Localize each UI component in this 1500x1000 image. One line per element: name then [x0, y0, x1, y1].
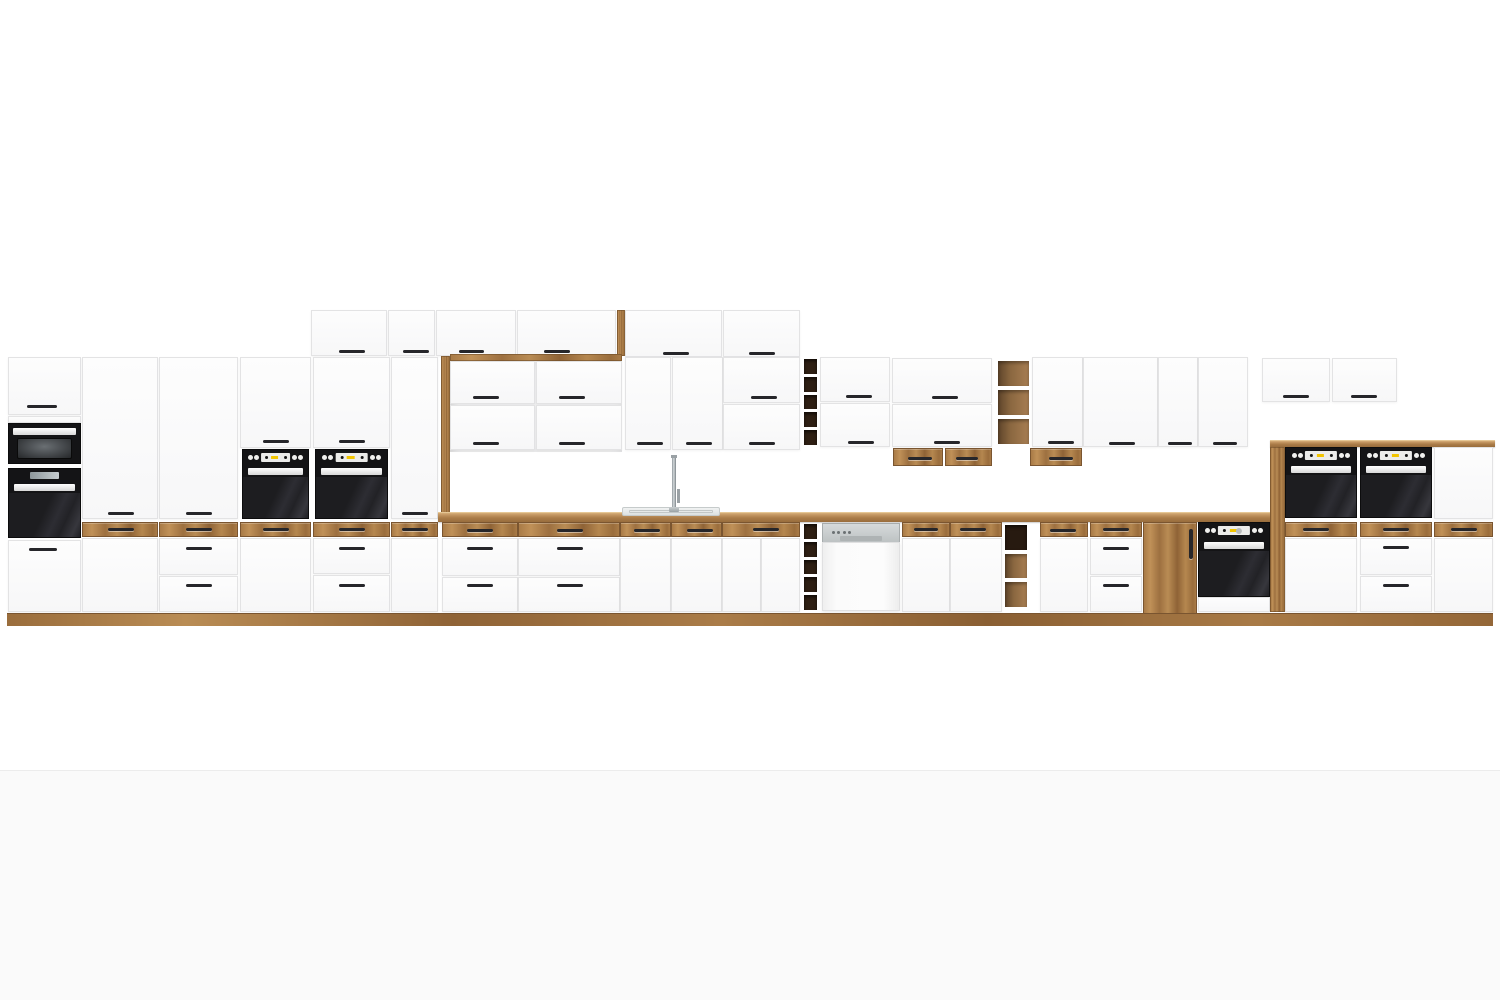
tall3-drawer-1: [159, 538, 238, 575]
oven-door-handle-bar: [1291, 466, 1351, 473]
cabinet-handle: [960, 528, 986, 531]
open-shelf-cell: [998, 390, 1029, 415]
wall-flap-2: [723, 404, 800, 450]
wall-door-4: [1083, 357, 1158, 447]
cabinet-handle: [749, 442, 775, 445]
cabinet-handle: [1283, 395, 1309, 398]
sinkbase-door-1: [620, 538, 671, 612]
wine-rack-cell: [804, 577, 817, 592]
wall-wood-drawer-2: [945, 448, 992, 466]
wall-top-door-1: [311, 310, 387, 356]
kitchen-product-render: [0, 0, 1500, 1000]
wine-rack-cell: [804, 395, 817, 410]
base2-wood-drawer: [518, 522, 620, 537]
oven-door-handle-bar: [1366, 466, 1426, 473]
recess-frame-top: [450, 354, 622, 361]
wall-flap-6: [892, 404, 992, 447]
housing-wood-drawer-2: [1360, 522, 1432, 537]
open-shelf-cell: [1005, 582, 1027, 607]
oven-door: [1361, 475, 1431, 517]
wall-top-door-4: [517, 310, 616, 356]
faucet-top: [671, 455, 677, 458]
cabinet-handle: [403, 350, 429, 353]
wine-rack-cell: [804, 412, 817, 427]
cabinet-handle: [263, 440, 289, 443]
dishwasher: [822, 523, 900, 611]
sinkbase-wood-drawer-1: [620, 522, 671, 537]
cabinet-handle: [846, 395, 872, 398]
tall4-door-lower: [391, 538, 438, 612]
open-shelf-cell: [998, 361, 1029, 386]
compact-oven-panel: [9, 469, 80, 482]
base2-drawer-1: [518, 538, 620, 576]
housing-drawer-2: [1360, 576, 1432, 612]
cabinet-handle: [1213, 442, 1237, 445]
cabinet-handle: [956, 457, 978, 460]
base6-wood-drawer: [1040, 522, 1088, 537]
cabinet-handle: [934, 441, 960, 444]
cabinet-handle: [932, 396, 958, 399]
base2-drawer-2: [518, 577, 620, 612]
cabinet-handle: [751, 396, 777, 399]
wall-top-door-2: [388, 310, 435, 356]
recess-flap-4: [536, 405, 622, 450]
recess-flap-1: [450, 361, 535, 404]
cabinet-handle: [402, 512, 428, 515]
cabinet-handle: [467, 529, 493, 532]
wine-rack-cell: [804, 560, 817, 575]
wall-top-door-6: [723, 310, 800, 357]
cabinet-handle: [557, 584, 583, 587]
base4-wood-drawer: [902, 522, 950, 537]
cabinet-handle: [339, 440, 365, 443]
cabinet-handle: [1168, 442, 1192, 445]
faucet-base: [669, 507, 679, 512]
open-shelf-cell: [1005, 525, 1027, 550]
oven-display: [261, 453, 291, 462]
oven-door-handle-bar: [1204, 542, 1264, 549]
tall2-wood-drawer: [82, 522, 158, 537]
base7-drawer-2: [1090, 576, 1142, 612]
wall-flap-5: [892, 358, 992, 403]
tall3-door-upper: [159, 357, 238, 519]
cabinet-handle: [186, 547, 212, 550]
overoven-flap-2: [1332, 358, 1397, 402]
compact-oven-door: [9, 493, 80, 537]
housing-wood-drawer-1: [1285, 522, 1357, 537]
wall-door-1: [625, 357, 671, 450]
cabinet-handle: [1103, 528, 1129, 531]
ovencol2-door: [313, 357, 390, 448]
cabinet-handle-vertical: [1189, 529, 1193, 559]
oven-display: [335, 453, 368, 462]
wine-rack-cell: [804, 430, 817, 445]
tall3-wood-drawer: [159, 522, 238, 537]
wall-door-5: [1158, 357, 1198, 447]
cabinet-handle: [1451, 528, 1477, 531]
base7-wood-drawer: [1090, 522, 1142, 537]
housing-drawer-1: [1360, 538, 1432, 575]
tall1-compact-oven: [8, 468, 81, 538]
cabinet-handle: [186, 584, 212, 587]
housing-upper-panel: [1434, 447, 1493, 519]
cabinet-handle: [557, 529, 583, 532]
oven-door: [316, 477, 387, 518]
cabinet-handle: [663, 352, 689, 355]
ovencol1-oven: [242, 449, 309, 519]
oven-door: [1199, 551, 1269, 596]
housing-wood-drawer-3: [1434, 522, 1493, 537]
wall-top-door-3: [436, 310, 516, 356]
cabinet-handle: [1383, 546, 1409, 549]
compact-oven-display: [30, 472, 58, 479]
wall-door-3: [1032, 357, 1083, 447]
cabinet-handle: [1048, 441, 1074, 444]
tall4-door: [391, 357, 438, 519]
dishwasher-control-band: [822, 523, 900, 544]
compact-oven-handle-bar: [14, 484, 75, 491]
cabinet-handle: [27, 405, 57, 408]
cabinet-handle: [1383, 584, 1409, 587]
faucet-lever: [677, 489, 680, 503]
cabinet-handle: [467, 547, 493, 550]
cabinet-handle: [559, 396, 585, 399]
base3-door-2: [761, 538, 800, 612]
cabinet-handle: [914, 528, 938, 531]
cabinet-handle: [753, 528, 779, 531]
open-shelf-cell: [998, 419, 1029, 444]
cabinet-handle: [339, 547, 365, 550]
oven-door-handle-bar: [321, 468, 382, 475]
oven-door: [1286, 475, 1356, 517]
cabinet-handle: [544, 350, 570, 353]
ovencol2-drawer-2: [313, 575, 390, 612]
cabinet-handle: [459, 350, 484, 353]
wall-flap-3: [820, 357, 890, 402]
wine-rack-cell: [804, 595, 817, 610]
plinth: [7, 613, 1493, 626]
housing-oven-1: [1285, 447, 1357, 518]
oven-control-panel: [1286, 448, 1356, 463]
wall-flap-1: [723, 357, 800, 403]
housing-left-panel: [1270, 447, 1285, 612]
dishwasher-handle-recess: [840, 536, 882, 541]
base1-drawer-1: [442, 538, 518, 576]
base-oven-bottom-panel: [1198, 597, 1270, 612]
oven-display: [1380, 451, 1412, 460]
tall1-drawer: [8, 540, 81, 612]
cabinet-handle: [1050, 529, 1076, 532]
cabinet-handle: [186, 528, 212, 531]
base7-drawer-1: [1090, 538, 1142, 575]
cabinet-handle: [749, 352, 775, 355]
base-open-shelf: [1002, 522, 1030, 610]
cabinet-handle: [1103, 584, 1129, 587]
cabinet-handle: [473, 396, 499, 399]
cabinet-handle: [1049, 457, 1073, 460]
cabinet-handle: [686, 442, 712, 445]
base-oven: [1198, 522, 1270, 597]
tall4-wood-drawer: [391, 522, 438, 537]
oven-control-panel: [316, 450, 387, 465]
wall-top-end-panel: [617, 310, 625, 356]
open-shelf-cell: [1005, 554, 1027, 579]
base1-drawer-2: [442, 577, 518, 612]
ovencol2-oven: [315, 449, 388, 519]
countertop: [438, 512, 1270, 522]
cabinet-handle: [637, 442, 663, 445]
cabinet-handle: [1109, 442, 1135, 445]
recess-frame-left: [441, 356, 450, 516]
dishwasher-front: [822, 542, 900, 611]
tall1-filler: [8, 416, 81, 423]
cabinet-handle: [1103, 547, 1129, 550]
ovencol2-drawer-1: [313, 538, 390, 574]
wall-top-door-5: [625, 310, 722, 357]
cabinet-handle: [908, 457, 932, 460]
wall-door-2: [672, 357, 723, 450]
cabinet-handle: [339, 528, 365, 531]
wall-wood-drawer-3: [1030, 448, 1082, 466]
cabinet-handle: [1303, 528, 1329, 531]
ovencol1-wood-drawer: [240, 522, 311, 537]
cabinet-handle: [339, 584, 365, 587]
cabinet-handle: [339, 350, 365, 353]
tall3-drawer-2: [159, 576, 238, 612]
cabinet-handle: [1383, 528, 1409, 531]
overoven-flap-1: [1262, 358, 1330, 402]
recess-flap-2: [536, 361, 622, 404]
faucet-pipe: [672, 457, 676, 508]
base5-door: [950, 538, 1002, 612]
housing-door-1: [1285, 538, 1357, 612]
wine-rack-cell: [804, 524, 817, 539]
ovencol1-door-lower: [240, 538, 311, 612]
base-wood-door: [1143, 522, 1197, 617]
base1-wood-drawer: [442, 522, 518, 537]
sinkbase-wood-drawer-2: [671, 522, 722, 537]
cabinet-handle: [1351, 395, 1377, 398]
base-wine-rack: [802, 522, 819, 612]
microwave-window: [17, 438, 72, 459]
cabinet-handle: [687, 529, 713, 532]
ovencol1-door: [240, 357, 311, 448]
housing-countertop: [1270, 440, 1495, 447]
wall-door-6: [1198, 357, 1248, 447]
base3-wood-drawer: [722, 522, 800, 537]
wall-open-shelf: [995, 358, 1032, 447]
oven-control-panel: [1361, 448, 1431, 463]
sinkbase-door-2: [671, 538, 722, 612]
tall2-door-lower: [82, 538, 158, 612]
cabinet-handle: [29, 548, 57, 551]
cabinet-handle: [559, 442, 585, 445]
wine-rack-cell: [804, 359, 817, 374]
tall1-microwave: [8, 423, 81, 464]
base4-door: [902, 538, 950, 612]
oven-control-panel: [243, 450, 308, 465]
tall2-door-upper: [82, 357, 158, 519]
oven-display: [1305, 451, 1337, 460]
wall-flap-4: [820, 403, 890, 447]
oven-door-handle-bar: [248, 468, 304, 475]
housing-oven-2: [1360, 447, 1432, 518]
wall-wine-rack: [802, 357, 819, 447]
cabinet-handle: [473, 442, 499, 445]
oven-control-panel: [1199, 523, 1269, 537]
cabinet-handle: [467, 584, 493, 587]
wall-wood-drawer-1: [893, 448, 943, 466]
cabinet-handle: [108, 528, 134, 531]
base5-wood-drawer: [950, 522, 1002, 537]
base6-door: [1040, 538, 1088, 612]
oven-display: [1218, 526, 1250, 535]
recess-flap-3: [450, 405, 535, 450]
cabinet-handle: [263, 528, 289, 531]
faucet: [668, 455, 686, 512]
kitchen-cabinet-run: [0, 0, 1500, 1000]
cabinet-handle: [634, 529, 660, 532]
microwave-handle-bar: [13, 428, 76, 435]
cabinet-handle: [186, 512, 212, 515]
cabinet-handle: [557, 547, 583, 550]
wine-rack-cell: [804, 542, 817, 557]
cabinet-handle: [108, 512, 134, 515]
cabinet-handle: [848, 441, 874, 444]
housing-door-2: [1434, 538, 1493, 612]
base3-door-1: [722, 538, 761, 612]
oven-door: [243, 477, 308, 518]
ovencol2-wood-drawer: [313, 522, 390, 537]
wine-rack-cell: [804, 377, 817, 392]
cabinet-handle: [402, 528, 428, 531]
tall1-top-door: [8, 357, 81, 415]
